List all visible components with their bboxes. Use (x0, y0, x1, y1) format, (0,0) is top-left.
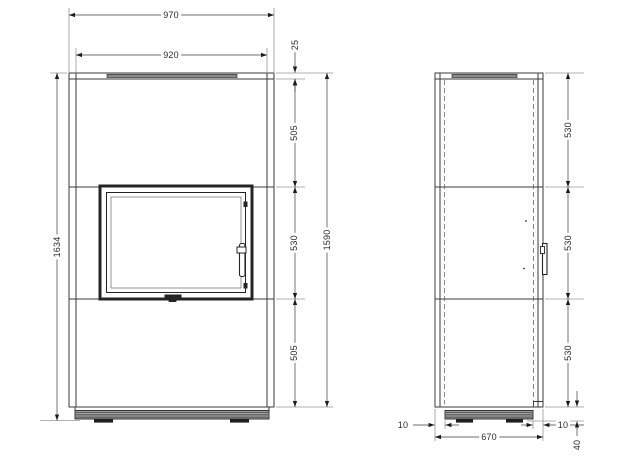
door-handle (237, 244, 246, 277)
dim-overall-width: 970 (161, 10, 181, 20)
side-foot-back (506, 419, 523, 423)
side-foot-front (456, 419, 473, 423)
dim-side-section-middle: 530 (563, 233, 573, 253)
dim-overall-height: 1634 (52, 235, 62, 260)
dim-lower-section: 505 (289, 343, 299, 363)
dim-inner-width: 920 (161, 50, 181, 60)
dim-base-inset-right: 10 (556, 420, 570, 430)
side-screw-bottom (523, 268, 525, 270)
drawing-linework (0, 0, 624, 460)
door-hinge-top (244, 202, 248, 208)
dim-upper-section: 505 (289, 123, 299, 143)
dim-side-section-top: 530 (563, 120, 573, 140)
dim-door-section: 530 (289, 233, 299, 253)
dim-base-inset-left: 10 (396, 420, 410, 430)
dim-side-section-bottom: 530 (563, 343, 573, 363)
side-door-handle (541, 244, 548, 275)
front-view (69, 73, 274, 423)
hidden-lines (445, 80, 534, 404)
front-top-plate (107, 74, 237, 77)
side-dimensions (413, 73, 584, 441)
dim-body-height: 1590 (322, 228, 332, 253)
front-door (100, 186, 252, 302)
side-screw-top (525, 220, 527, 222)
technical-drawing: 970 920 25 505 530 505 1590 1634 530 530… (0, 0, 624, 460)
dim-depth: 670 (479, 432, 499, 442)
dim-top-plate: 25 (290, 38, 300, 52)
side-view (435, 73, 547, 423)
front-foot-left (94, 419, 113, 423)
door-latch (165, 295, 182, 303)
side-top-plate (452, 74, 517, 77)
front-foot-right (230, 419, 249, 423)
side-base (445, 411, 533, 423)
side-body (435, 73, 543, 407)
front-base (75, 407, 269, 423)
door-hinge-bottom (244, 283, 248, 289)
dim-base-height: 40 (572, 438, 582, 452)
